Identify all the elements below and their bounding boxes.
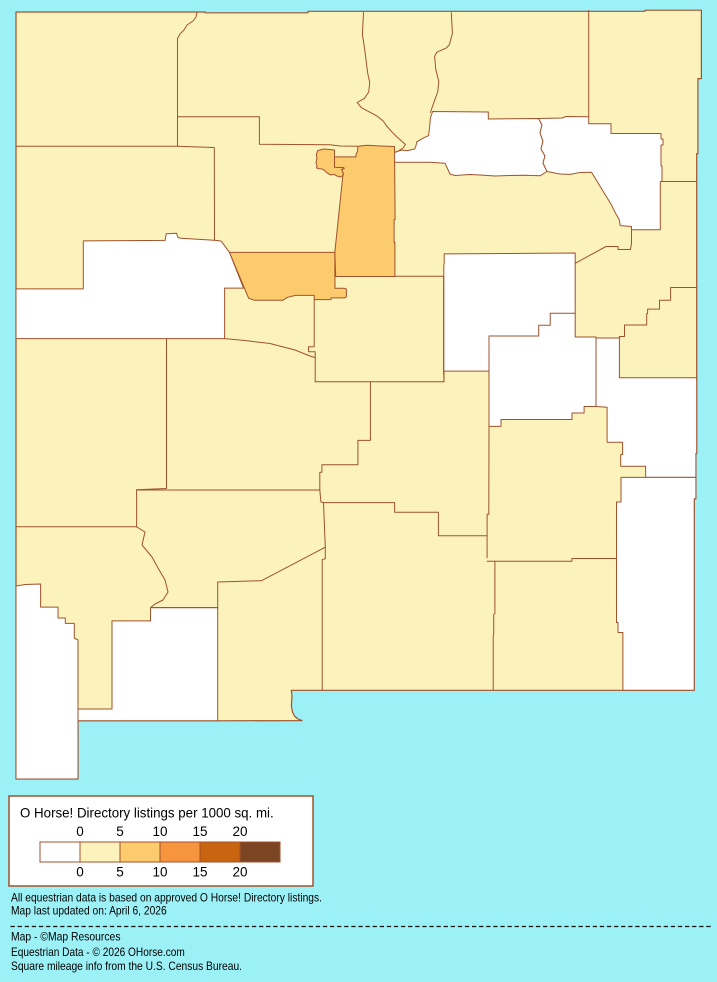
svg-text:Square mileage info from the U: Square mileage info from the U.S. Census… — [11, 959, 242, 973]
svg-text:0: 0 — [76, 865, 84, 880]
svg-text:20: 20 — [232, 865, 247, 880]
svg-text:5: 5 — [116, 865, 124, 880]
svg-text:Equestrian Data - © 2026 OHors: Equestrian Data - © 2026 OHorse.com — [11, 945, 185, 959]
svg-text:O Horse! Directory listings pe: O Horse! Directory listings per 1000 sq.… — [20, 805, 274, 821]
svg-text:Map last updated on: April 6,: Map last updated on: April 6, 2026 — [11, 904, 167, 918]
svg-text:Map - ©Map Resources: Map - ©Map Resources — [11, 930, 121, 944]
svg-text:15: 15 — [192, 865, 207, 880]
svg-text:10: 10 — [152, 865, 167, 880]
svg-text:20: 20 — [232, 824, 247, 839]
svg-text:0: 0 — [76, 824, 84, 839]
svg-text:All equestrian data is based o: All equestrian data is based on approved… — [11, 891, 322, 905]
svg-text:10: 10 — [152, 824, 167, 839]
svg-text:15: 15 — [192, 824, 207, 839]
svg-text:5: 5 — [116, 824, 124, 839]
